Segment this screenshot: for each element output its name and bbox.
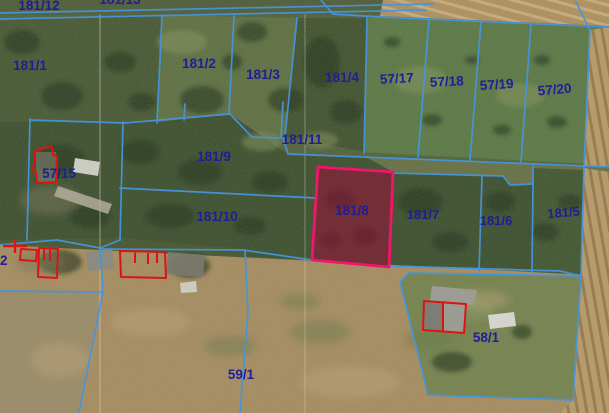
- parcel-label-181-1: 181/1: [13, 58, 47, 73]
- parcel-label-181-8: 181/8: [335, 203, 369, 218]
- parcel-label-181-3: 181/3: [246, 67, 280, 82]
- parcel-label-181-5: 181/5: [547, 204, 581, 222]
- parcel-label-59-1: 59/1: [228, 367, 255, 382]
- parcel-label-58-1: 58/1: [473, 330, 500, 345]
- parcel-label-181-7: 181/7: [407, 207, 440, 222]
- parcel-label-181-11: 181/11: [282, 132, 323, 147]
- parcel-label-181-12: 181/12: [18, 0, 59, 13]
- map-viewport[interactable]: 181/12 181/13 181/1 181/2 181/3 181/4 57…: [0, 0, 609, 413]
- parcel-label-181-10: 181/10: [196, 209, 237, 224]
- parcel-label-top-clipped: 181/13: [99, 0, 141, 7]
- parcel-label-181-9: 181/9: [197, 149, 231, 164]
- parcel-label-2-clipped: 2: [0, 253, 8, 268]
- parcel-label-181-2: 181/2: [182, 56, 216, 71]
- parcel-label-57-19: 57/19: [479, 76, 514, 93]
- parcel-label-181-4: 181/4: [325, 70, 359, 85]
- cadastral-map-canvas[interactable]: 181/12 181/13 181/1 181/2 181/3 181/4 57…: [0, 0, 609, 413]
- parcel-label-57-20: 57/20: [537, 81, 572, 99]
- parcel-label-57-17: 57/17: [379, 70, 414, 87]
- parcel-label-57-18: 57/18: [429, 73, 464, 90]
- parcel-label-181-6: 181/6: [480, 213, 513, 228]
- parcel-label-57-15: 57/15: [42, 166, 76, 181]
